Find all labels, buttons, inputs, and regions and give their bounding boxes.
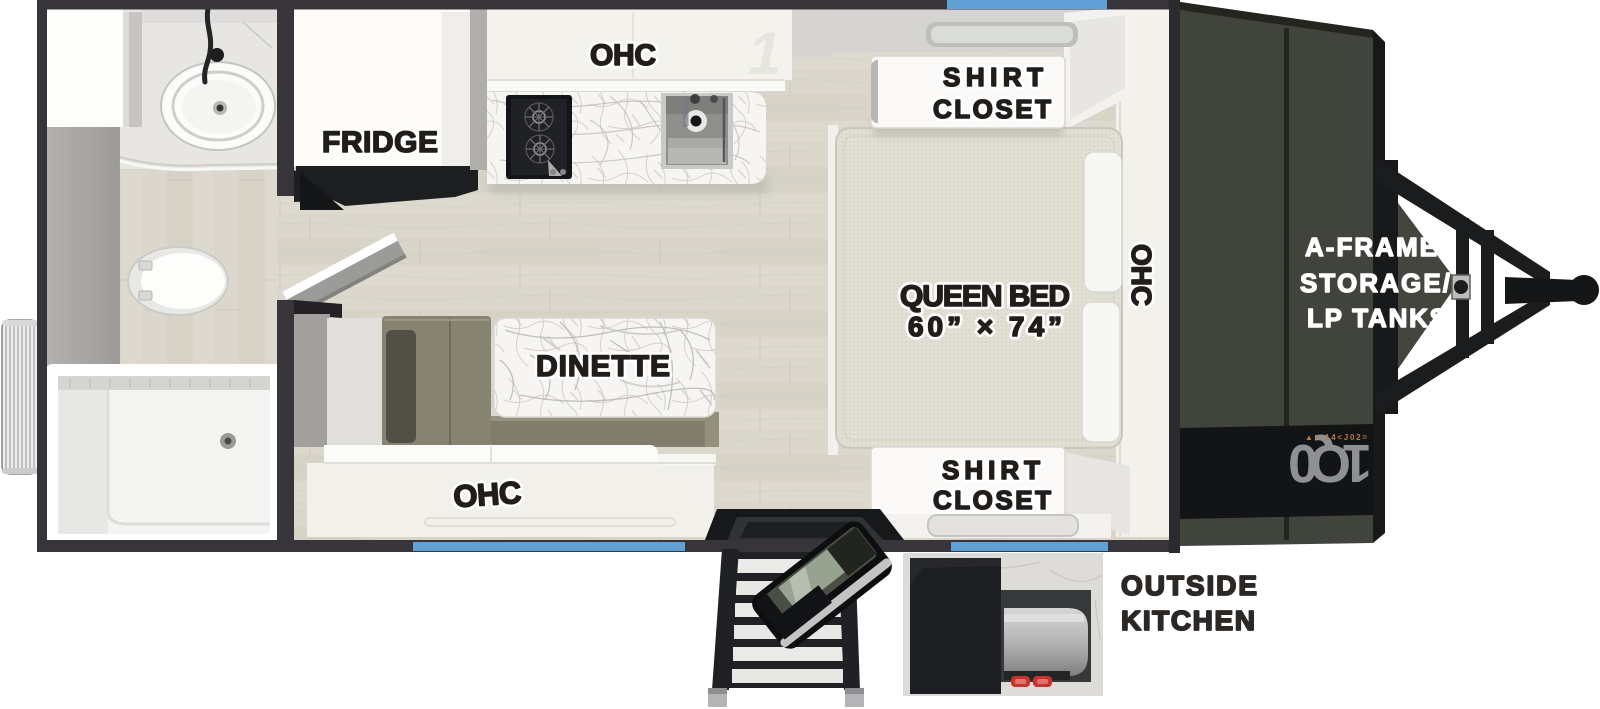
svg-text:A-FRAME: A-FRAME [1305,232,1437,262]
svg-text:1Q0: 1Q0 [1288,433,1372,493]
svg-text:QUEEN BED: QUEEN BED [900,280,1070,313]
svg-text:STORAGE/: STORAGE/ [1300,268,1450,298]
svg-text:OHC: OHC [1126,244,1157,306]
svg-text:OHC: OHC [590,39,656,72]
svg-text:1: 1 [748,20,781,87]
svg-text:SHIRT: SHIRT [942,455,1040,485]
svg-text:SHIRT: SHIRT [943,62,1043,92]
svg-text:DINETTE: DINETTE [536,350,670,383]
svg-text:KITCHEN: KITCHEN [1121,605,1255,636]
svg-text:FRIDGE: FRIDGE [322,126,438,159]
svg-text:LP TANKS: LP TANKS [1307,303,1447,333]
svg-text:OHC: OHC [452,475,522,515]
svg-text:60” × 74”: 60” × 74” [908,311,1062,342]
